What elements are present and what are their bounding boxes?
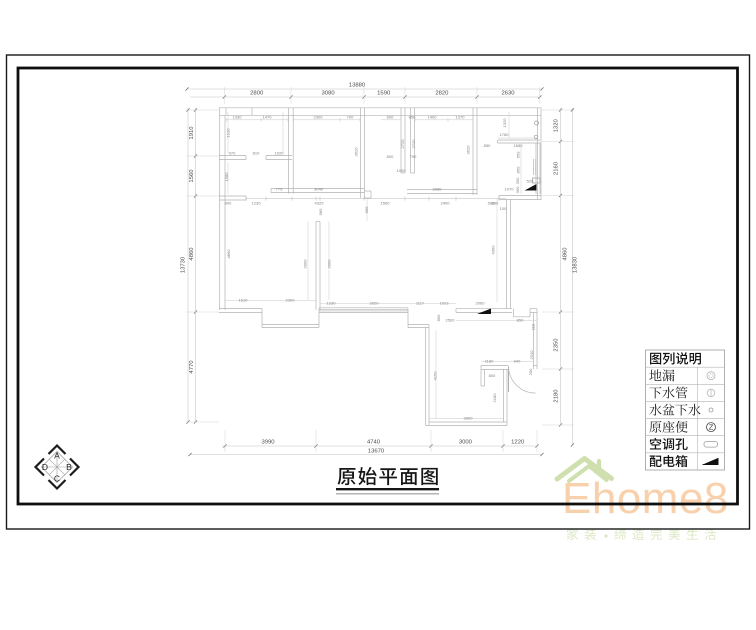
svg-text:2300: 2300	[314, 115, 324, 120]
svg-text:1560: 1560	[381, 201, 391, 206]
svg-text:4860: 4860	[189, 247, 195, 261]
svg-text:3000: 3000	[464, 416, 474, 421]
svg-text:4860: 4860	[563, 247, 569, 261]
svg-text:13880: 13880	[349, 83, 366, 89]
svg-text:1023: 1023	[440, 301, 450, 306]
svg-text:1320: 1320	[554, 119, 560, 133]
svg-text:1117: 1117	[416, 301, 425, 306]
svg-text:700: 700	[347, 115, 354, 120]
svg-text:1230: 1230	[327, 301, 337, 306]
svg-text:1320: 1320	[502, 118, 507, 128]
svg-text:110: 110	[531, 323, 536, 330]
svg-text:3990: 3990	[261, 440, 275, 446]
svg-text:1560: 1560	[189, 169, 195, 183]
svg-text:860: 860	[436, 314, 441, 321]
svg-text:800: 800	[387, 154, 394, 159]
svg-text:2900: 2900	[327, 259, 332, 269]
svg-text:4860: 4860	[226, 249, 231, 259]
svg-text:650: 650	[516, 151, 521, 158]
svg-text:1910: 1910	[189, 126, 195, 140]
svg-text:3080: 3080	[433, 187, 443, 192]
svg-text:520: 520	[527, 179, 534, 184]
svg-text:1470: 1470	[263, 115, 273, 120]
svg-text:1220: 1220	[511, 440, 525, 446]
svg-text:1590: 1590	[377, 91, 391, 97]
svg-text:1180: 1180	[485, 359, 494, 364]
svg-text:1000: 1000	[397, 168, 407, 173]
svg-text:980: 980	[318, 208, 323, 215]
svg-text:1020: 1020	[275, 151, 285, 156]
svg-text:2630: 2630	[501, 91, 515, 97]
svg-text:3000: 3000	[459, 440, 473, 446]
svg-text:Ehome8: Ehome8	[562, 474, 729, 523]
svg-text:13830: 13830	[573, 256, 579, 273]
svg-text:2900: 2900	[303, 259, 308, 269]
svg-text:2720: 2720	[411, 139, 416, 149]
svg-text:940: 940	[514, 359, 521, 364]
svg-text:970: 970	[229, 151, 236, 156]
svg-text:2800: 2800	[250, 91, 264, 97]
svg-text:2400: 2400	[441, 201, 451, 206]
svg-text:2310: 2310	[529, 350, 534, 360]
svg-text:D: D	[42, 462, 48, 472]
svg-text:4329: 4329	[315, 201, 325, 206]
svg-text:800: 800	[489, 373, 496, 378]
svg-text:1230: 1230	[252, 201, 262, 206]
svg-text:300: 300	[515, 177, 520, 184]
svg-text:3040: 3040	[314, 187, 324, 192]
svg-text:360: 360	[515, 186, 520, 193]
svg-text:850: 850	[517, 318, 524, 323]
svg-text:1680: 1680	[514, 143, 524, 148]
svg-text:2620: 2620	[370, 301, 380, 306]
svg-text:4770: 4770	[189, 360, 195, 374]
svg-text:2160: 2160	[554, 161, 560, 175]
svg-text:2180: 2180	[554, 389, 560, 403]
svg-text:850: 850	[484, 143, 491, 148]
svg-text:880: 880	[492, 201, 499, 206]
svg-text:2060: 2060	[476, 301, 486, 306]
svg-text:13670: 13670	[368, 449, 385, 455]
svg-text:3620: 3620	[466, 145, 471, 155]
svg-text:4740: 4740	[367, 440, 381, 446]
svg-text:600: 600	[387, 115, 394, 120]
svg-text:850: 850	[409, 115, 416, 120]
svg-text:2500: 2500	[446, 318, 456, 323]
svg-text:779: 779	[276, 187, 283, 192]
svg-text:800: 800	[225, 201, 232, 206]
svg-text:4360: 4360	[491, 245, 496, 255]
svg-text:810: 810	[253, 151, 260, 156]
svg-text:1330: 1330	[233, 115, 243, 120]
svg-text:1610: 1610	[239, 298, 249, 303]
svg-text:2350: 2350	[554, 338, 560, 352]
svg-text:2180: 2180	[492, 393, 497, 403]
svg-text:790: 790	[410, 154, 417, 159]
svg-text:1400: 1400	[428, 115, 438, 120]
svg-text:1580: 1580	[224, 172, 229, 182]
svg-text:2720: 2720	[400, 139, 405, 149]
svg-text:4150: 4150	[433, 371, 438, 381]
svg-text:1780: 1780	[500, 132, 510, 137]
svg-text:850: 850	[516, 166, 521, 173]
svg-text:100: 100	[500, 206, 507, 211]
svg-text:3080: 3080	[322, 91, 336, 97]
svg-text:Z: Z	[709, 423, 714, 432]
svg-text:13730: 13730	[181, 256, 187, 273]
svg-text:1910: 1910	[226, 128, 231, 138]
svg-text:960: 960	[364, 206, 369, 213]
svg-text:3620: 3620	[354, 147, 359, 157]
svg-text:C: C	[54, 474, 60, 484]
svg-text:B: B	[66, 462, 72, 472]
svg-text:2820: 2820	[435, 91, 449, 97]
svg-text:A: A	[54, 451, 60, 461]
svg-text:200: 200	[528, 368, 533, 375]
svg-text:1070: 1070	[505, 187, 515, 192]
svg-text:1370: 1370	[456, 115, 466, 120]
svg-text:2300: 2300	[286, 298, 296, 303]
